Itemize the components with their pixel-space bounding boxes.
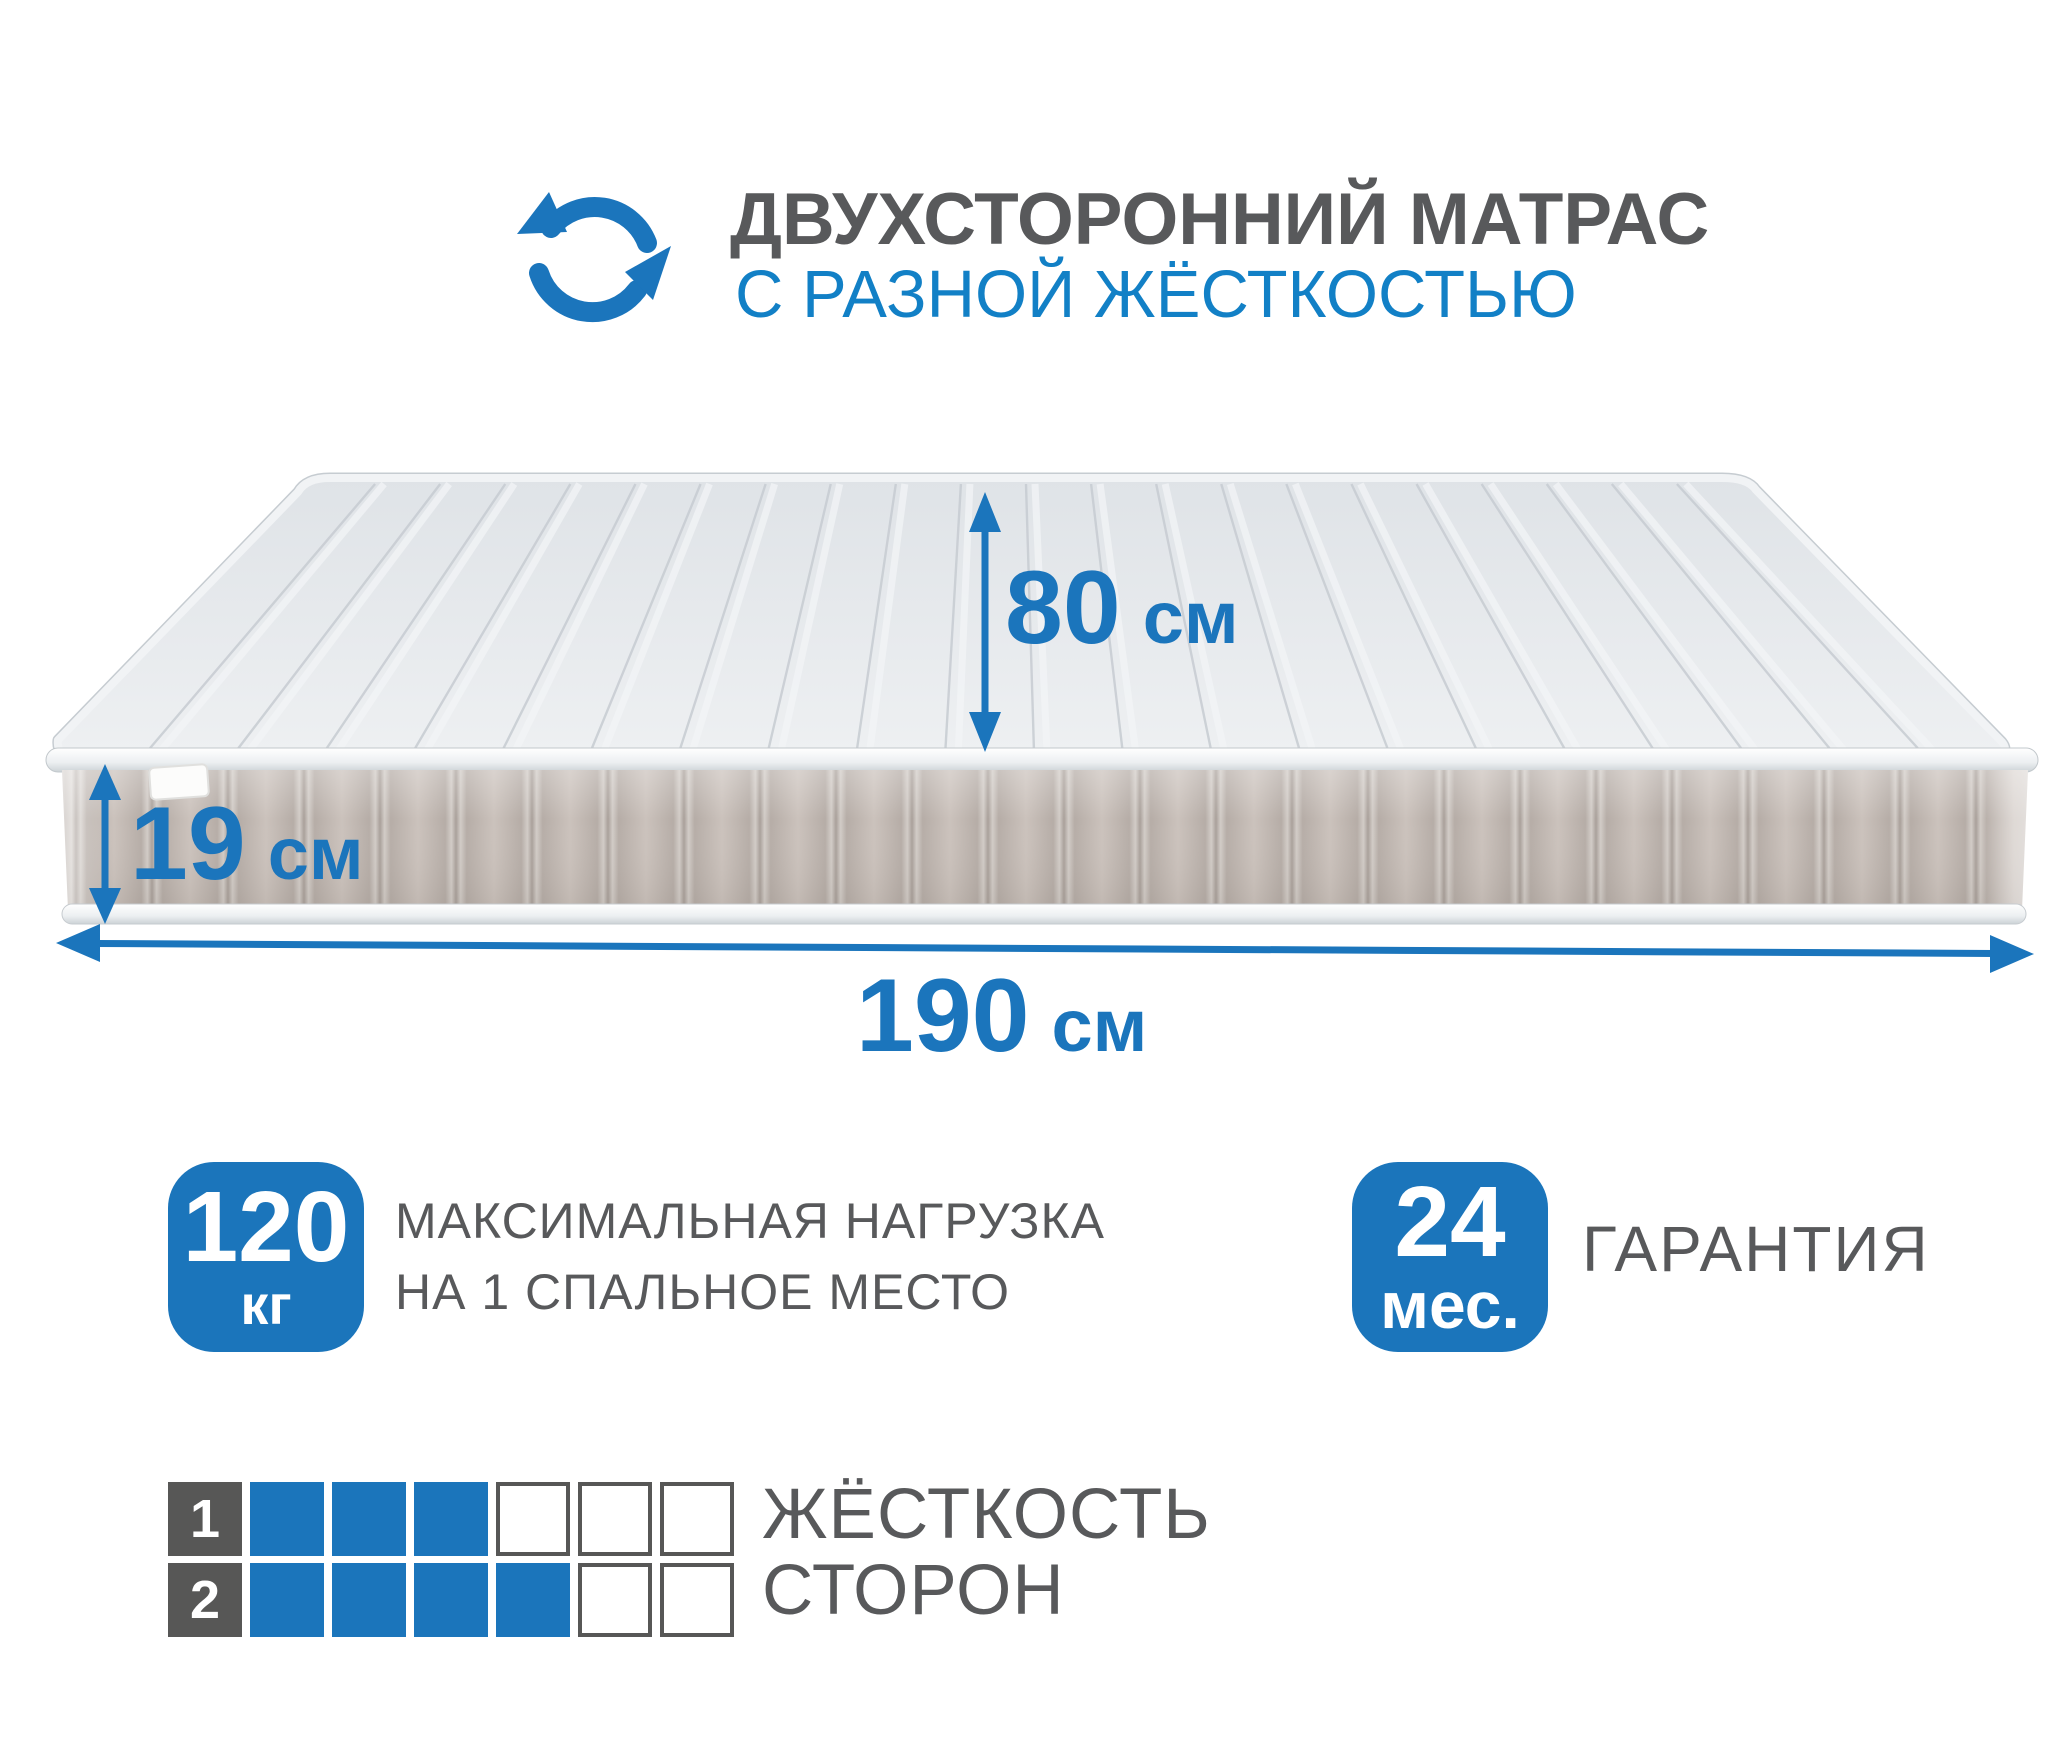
hardness-square-empty: [578, 1563, 652, 1637]
max-load-label-line1: МАКСИМАЛЬНАЯ НАГРУЗКА: [395, 1186, 1105, 1257]
warranty-label: ГАРАНТИЯ: [1582, 1214, 1930, 1285]
hardness-caption-line1: ЖЁСТКОСТЬ: [762, 1477, 1211, 1553]
hardness-square-filled: [414, 1563, 488, 1637]
hardness-side-number: 1: [168, 1482, 242, 1556]
hardness-square-empty: [496, 1482, 570, 1556]
max-load-unit: кг: [240, 1277, 291, 1333]
hardness-square-filled: [250, 1482, 324, 1556]
warranty-unit: мес.: [1380, 1272, 1520, 1338]
dimension-width: 80 см: [1005, 556, 1239, 660]
hardness-side-number: 2: [168, 1563, 242, 1637]
dimension-width-unit: см: [1143, 581, 1239, 655]
dimension-height-value: 19: [130, 792, 246, 896]
max-load-label-line2: НА 1 СПАЛЬНОЕ МЕСТО: [395, 1257, 1105, 1328]
hardness-square-empty: [578, 1482, 652, 1556]
hardness-square-filled: [496, 1563, 570, 1637]
infographic-canvas: ДВУХСТОРОННИЙ МАТРАС С РАЗНОЙ ЖЁСТКОСТЬЮ: [0, 0, 2048, 1757]
dimension-length-value: 190: [856, 964, 1030, 1068]
hardness-square-filled: [250, 1563, 324, 1637]
dimension-length-unit: см: [1052, 989, 1148, 1063]
hardness-caption-line2: СТОРОН: [762, 1553, 1211, 1629]
hardness-square-filled: [332, 1563, 406, 1637]
hardness-square-filled: [414, 1482, 488, 1556]
hardness-square-filled: [332, 1482, 406, 1556]
max-load-label: МАКСИМАЛЬНАЯ НАГРУЗКА НА 1 СПАЛЬНОЕ МЕСТ…: [395, 1186, 1105, 1328]
page-subtitle: С РАЗНОЙ ЖЁСТКОСТЬЮ: [735, 261, 1577, 328]
dimension-width-value: 80: [1005, 556, 1121, 660]
hardness-square-empty: [660, 1482, 734, 1556]
warranty-value: 24: [1394, 1176, 1505, 1268]
dimension-height: 19 см: [130, 792, 364, 896]
warranty-badge: 24 мес.: [1352, 1162, 1548, 1352]
max-load-badge: 120 кг: [168, 1162, 364, 1352]
hardness-row: 2: [168, 1563, 734, 1637]
hardness-square-empty: [660, 1563, 734, 1637]
hardness-row: 1: [168, 1482, 734, 1556]
max-load-value: 120: [183, 1181, 350, 1273]
rotate-arrows-icon: [513, 178, 673, 338]
mattress-top-piping: [46, 748, 2038, 772]
dimension-height-unit: см: [268, 817, 364, 891]
mattress-bottom-piping: [62, 904, 2026, 924]
hardness-rows: 12: [168, 1482, 734, 1644]
page-title: ДВУХСТОРОННИЙ МАТРАС: [730, 183, 1709, 256]
hardness-caption: ЖЁСТКОСТЬ СТОРОН: [762, 1477, 1211, 1629]
dimension-length: 190 см: [856, 964, 1147, 1068]
